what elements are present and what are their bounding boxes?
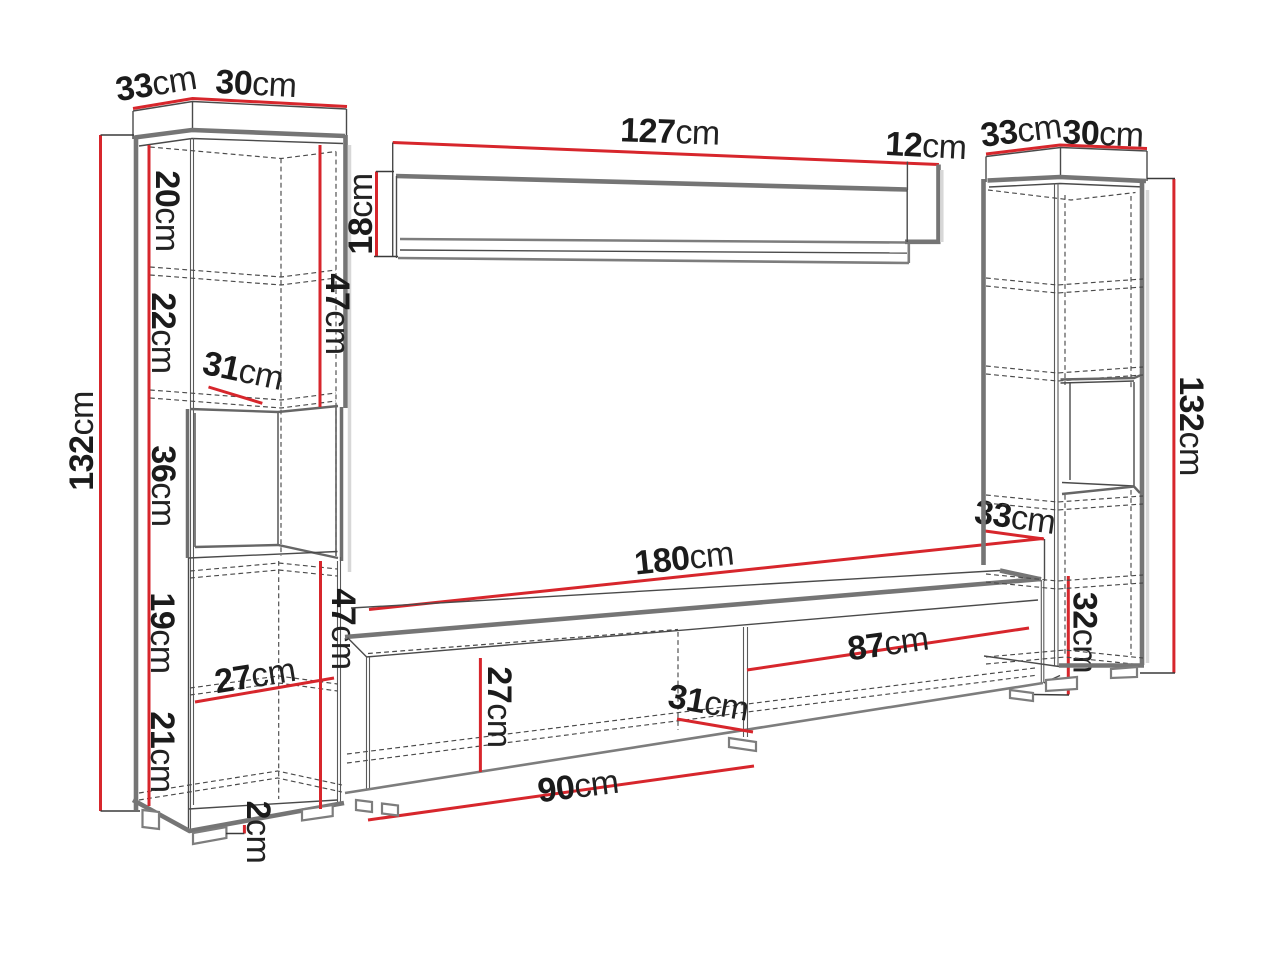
svg-text:32cm: 32cm bbox=[1066, 592, 1104, 673]
svg-text:12cm: 12cm bbox=[884, 125, 967, 167]
svg-text:19cm: 19cm bbox=[143, 592, 181, 673]
svg-text:30cm: 30cm bbox=[214, 63, 297, 105]
svg-text:47cm: 47cm bbox=[318, 273, 356, 354]
svg-text:132cm: 132cm bbox=[63, 391, 101, 491]
svg-text:132cm: 132cm bbox=[1172, 376, 1210, 476]
svg-text:36cm: 36cm bbox=[144, 445, 182, 526]
svg-text:20cm: 20cm bbox=[148, 170, 186, 251]
svg-text:127cm: 127cm bbox=[620, 111, 721, 152]
svg-text:47cm: 47cm bbox=[324, 588, 362, 669]
svg-text:30cm: 30cm bbox=[1062, 113, 1145, 155]
svg-text:18cm: 18cm bbox=[342, 173, 380, 254]
svg-text:2cm: 2cm bbox=[239, 801, 277, 864]
svg-text:21cm: 21cm bbox=[143, 711, 181, 792]
svg-text:27cm: 27cm bbox=[480, 666, 518, 747]
svg-text:22cm: 22cm bbox=[144, 292, 182, 373]
